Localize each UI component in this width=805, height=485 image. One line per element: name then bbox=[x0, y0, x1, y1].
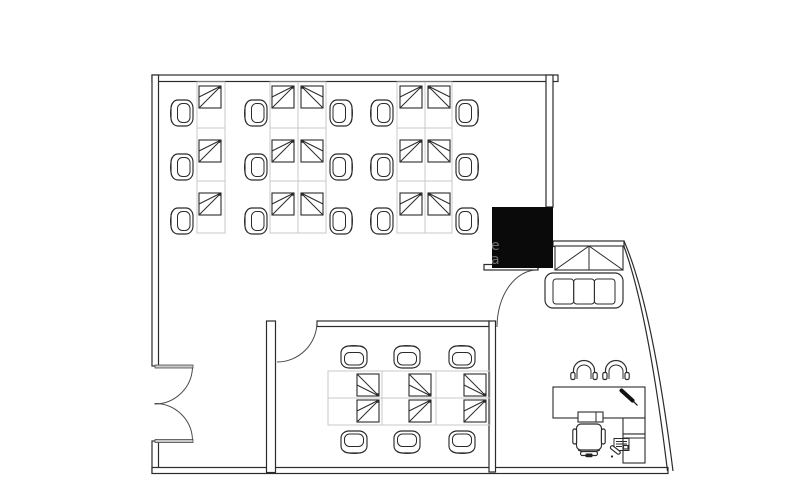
chair-icon bbox=[341, 431, 367, 454]
chair-icon bbox=[449, 431, 475, 454]
meeting-room-door-arc bbox=[277, 322, 317, 362]
chair-icon bbox=[394, 346, 420, 369]
wall-bottom bbox=[152, 468, 668, 474]
wall-meeting-top bbox=[317, 321, 489, 327]
chair-icon bbox=[371, 154, 394, 180]
chair-icon bbox=[330, 208, 353, 234]
desk-icon bbox=[464, 400, 486, 422]
desk-icon bbox=[301, 140, 323, 162]
chair-icon bbox=[456, 100, 479, 126]
desk-icon bbox=[400, 86, 422, 108]
desk-icon bbox=[199, 140, 221, 162]
chair-icon bbox=[456, 154, 479, 180]
desk-icon bbox=[409, 374, 431, 396]
desk-return bbox=[623, 418, 645, 434]
task-chair-icon bbox=[573, 424, 605, 457]
chair-icon bbox=[171, 154, 194, 180]
chair-icon bbox=[245, 100, 268, 126]
desk-icon bbox=[199, 86, 221, 108]
desk-icon bbox=[428, 140, 450, 162]
wall-entry-vertical bbox=[267, 321, 276, 473]
entry-door-leaf-bottom bbox=[155, 440, 193, 443]
desk-icon bbox=[400, 140, 422, 162]
wall-right-upper bbox=[546, 75, 553, 207]
floor-plan-svg: e a bbox=[0, 0, 805, 485]
reception-door-arc bbox=[497, 270, 537, 327]
solid-core-block bbox=[492, 207, 553, 268]
chair-icon bbox=[245, 208, 268, 234]
desk-icon bbox=[400, 193, 422, 215]
desk-icon bbox=[301, 86, 323, 108]
reception-furniture bbox=[545, 246, 623, 308]
desk-icon bbox=[428, 86, 450, 108]
chair-icon bbox=[171, 208, 194, 234]
desk-icon bbox=[409, 400, 431, 422]
desk-icon bbox=[272, 86, 294, 108]
chair-icon bbox=[330, 100, 353, 126]
desk-icon bbox=[428, 193, 450, 215]
entry-door-leaf-top bbox=[155, 365, 193, 368]
wall-left-upper bbox=[152, 75, 159, 366]
desk-icon bbox=[357, 374, 379, 396]
desk-icon bbox=[357, 400, 379, 422]
chair-icon bbox=[371, 100, 394, 126]
desk-icon bbox=[199, 193, 221, 215]
floor-plan-canvas: e a bbox=[0, 0, 805, 485]
keyboard-icon bbox=[578, 412, 603, 422]
wall-top bbox=[152, 75, 558, 82]
desk-icon bbox=[301, 193, 323, 215]
watermark-char-2: a bbox=[491, 252, 500, 268]
cabinet-icon bbox=[555, 246, 623, 270]
chair-icon bbox=[171, 100, 194, 126]
visitor-chair-icon bbox=[603, 361, 629, 380]
chair-icon bbox=[330, 154, 353, 180]
chair-icon bbox=[394, 431, 420, 454]
chair-icon bbox=[456, 208, 479, 234]
desk-icon bbox=[272, 140, 294, 162]
entry-door-arc-bottom bbox=[155, 403, 193, 439]
desk-bank-grids bbox=[197, 82, 490, 425]
chair-icon bbox=[449, 346, 475, 369]
entry-door-arc-top bbox=[155, 368, 193, 404]
visitor-chair-icon bbox=[571, 361, 597, 380]
desk-icon bbox=[272, 193, 294, 215]
sofa-icon bbox=[545, 273, 623, 308]
chair-icon bbox=[245, 154, 268, 180]
chair-icon bbox=[371, 208, 394, 234]
desk-icon bbox=[464, 374, 486, 396]
chair-icon bbox=[341, 346, 367, 369]
